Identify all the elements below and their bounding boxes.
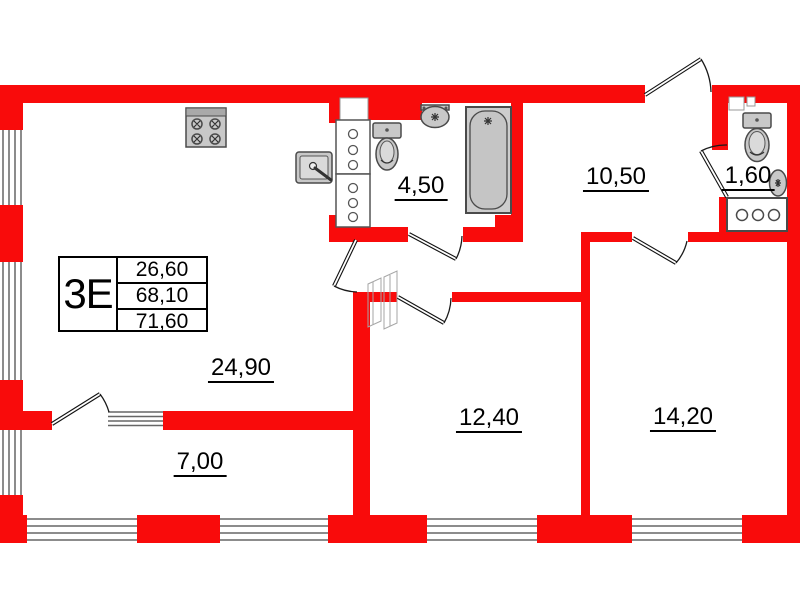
room14-door (633, 238, 687, 263)
bathroom-door (409, 234, 462, 259)
entrance-door (645, 59, 711, 95)
washbasin-icon (421, 105, 449, 128)
apartment-stamp-table: 3Е 26,60 68,10 71,60 (58, 256, 208, 332)
wall-segment (712, 85, 728, 150)
room-label-bathroom: 4,50 (395, 173, 448, 201)
apartment-type-label: 3Е (60, 258, 118, 330)
wall-segment (787, 85, 800, 515)
vent-niche (729, 97, 744, 110)
wc-toilet-icon (743, 113, 771, 162)
room-label-room14: 14,20 (650, 404, 716, 432)
corridor-door (334, 240, 357, 292)
kitchen-sink-icon (296, 152, 332, 183)
vent-niche (340, 98, 368, 120)
window-left-lower (3, 262, 21, 380)
room-label-kitchen-living: 24,90 (208, 355, 274, 383)
window-bottom-room7 (27, 519, 137, 540)
wall-segment (368, 103, 422, 120)
wall-segment (742, 515, 800, 543)
wall-segment (0, 205, 23, 262)
wall-segment (0, 515, 27, 543)
floor-plan: 24,90 7,00 12,40 14,20 4,50 10,50 1,60 3… (0, 0, 800, 600)
stove-icon (186, 108, 226, 147)
washing-machine-icon (727, 198, 787, 231)
bathtub-icon (466, 107, 511, 213)
apartment-areas: 26,60 68,10 71,60 (118, 258, 206, 330)
wall-segment (0, 411, 52, 430)
wall-segment (137, 515, 220, 543)
window-bottom-room7b (220, 519, 328, 540)
wall-segment (0, 85, 645, 103)
window-left-upper (3, 130, 21, 205)
wall-segment (0, 85, 23, 130)
wall-segment (349, 227, 408, 242)
wall-segment (328, 515, 427, 543)
toilet-icon (373, 123, 401, 170)
room-label-room7: 7,00 (174, 449, 227, 477)
interior-transom-window (108, 412, 163, 426)
vent-niche (747, 97, 755, 106)
wall-segment (463, 227, 520, 242)
wall-segment (537, 515, 632, 543)
room-label-hallway: 10,50 (583, 164, 649, 192)
wall-segment (353, 292, 370, 515)
wall-segment (452, 292, 590, 302)
wall-segment (688, 232, 800, 242)
window-left-room7 (3, 430, 21, 495)
wall-segment (581, 232, 590, 515)
room7-door (52, 394, 109, 424)
window-bottom-room14 (632, 519, 742, 540)
room-label-wc: 1,60 (722, 163, 775, 191)
room-label-room12: 12,40 (456, 405, 522, 433)
wall-segment (355, 292, 397, 302)
apartment-area-value: 68,10 (118, 284, 206, 310)
window-bottom-room12 (427, 519, 537, 540)
vent-shaft-icon (336, 120, 370, 227)
wall-segment (163, 411, 370, 430)
living-area-value: 26,60 (118, 258, 206, 284)
total-area-value: 71,60 (118, 310, 206, 334)
room12-door (398, 297, 451, 323)
